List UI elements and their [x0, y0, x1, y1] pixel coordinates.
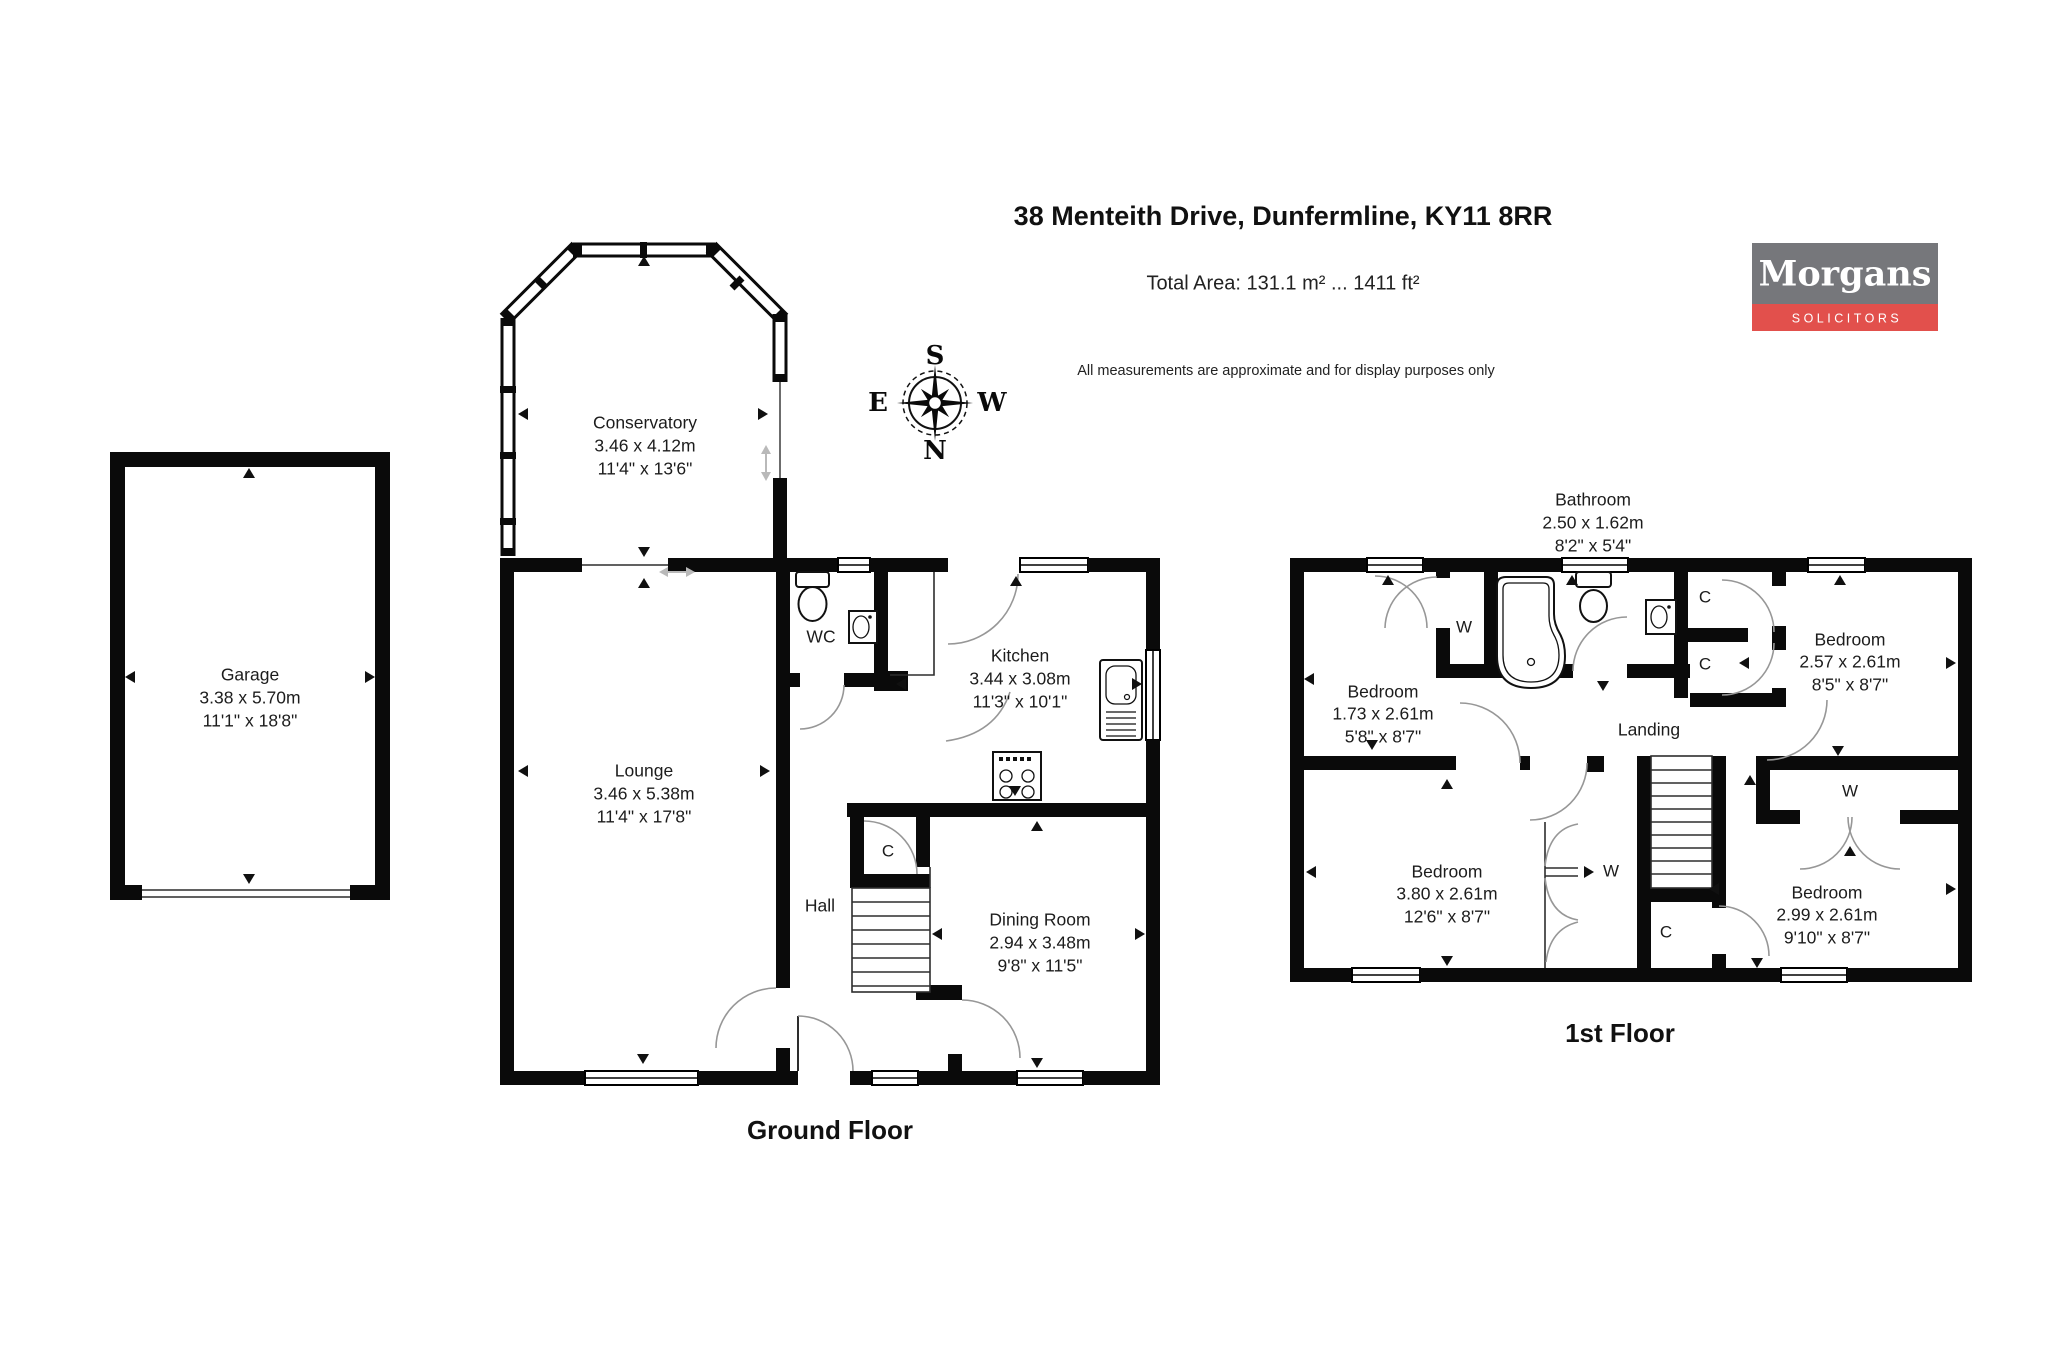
- svg-text:3.38 x 5.70m: 3.38 x 5.70m: [199, 688, 300, 708]
- svg-text:2.94 x 3.48m: 2.94 x 3.48m: [989, 933, 1090, 953]
- svg-text:3.80 x 2.61m: 3.80 x 2.61m: [1396, 884, 1497, 904]
- svg-text:2.57 x 2.61m: 2.57 x 2.61m: [1799, 652, 1900, 672]
- first-floor-plan: Bathroom 2.50 x 1.62m 8'2" x 5'4" Bedroo…: [1290, 490, 1972, 1048]
- disclaimer-text: All measurements are approximate and for…: [1077, 363, 1495, 379]
- ground-floor-label: Ground Floor: [747, 1115, 913, 1145]
- bath-icon: [1497, 577, 1565, 688]
- cupboard-marker-2: C: [1699, 654, 1711, 673]
- wardrobe-marker-2: W: [1603, 861, 1619, 880]
- morgans-logo: Morgans SOLICITORS: [1752, 243, 1938, 331]
- wc-toilet-icon: [796, 572, 829, 621]
- svg-text:Garage: Garage: [221, 665, 279, 685]
- svg-text:Lounge: Lounge: [615, 761, 673, 781]
- svg-text:3.44 x 3.08m: 3.44 x 3.08m: [969, 669, 1070, 689]
- dining-room-label: Dining Room 2.94 x 3.48m 9'8" x 11'5": [989, 910, 1090, 976]
- svg-text:Kitchen: Kitchen: [991, 646, 1049, 666]
- svg-text:Bedroom: Bedroom: [1411, 862, 1482, 882]
- svg-text:9'10" x 8'7": 9'10" x 8'7": [1784, 928, 1870, 948]
- kitchen-sink-icon: [1100, 660, 1142, 740]
- conservatory-bay-windows: [500, 242, 787, 560]
- bedroom-2-label: Bedroom 2.57 x 2.61m 8'5" x 8'7": [1799, 630, 1900, 695]
- svg-text:8'2" x 5'4": 8'2" x 5'4": [1555, 536, 1632, 556]
- ground-door-arcs: [716, 574, 1020, 1071]
- ground-stairs-icon: [852, 888, 930, 992]
- compass-top-letter: S: [926, 341, 945, 371]
- svg-text:11'4" x 17'8": 11'4" x 17'8": [597, 807, 692, 827]
- wc-label: WC: [806, 627, 835, 647]
- wardrobe-marker-1: W: [1456, 617, 1472, 636]
- first-stairs-icon: [1651, 756, 1712, 888]
- svg-text:Bedroom: Bedroom: [1814, 630, 1885, 650]
- svg-text:3.46 x 5.38m: 3.46 x 5.38m: [593, 784, 694, 804]
- svg-text:Bedroom: Bedroom: [1791, 883, 1862, 903]
- garage-plan: Garage 3.38 x 5.70m 11'1" x 18'8": [110, 452, 390, 900]
- floorplan-page: 38 Menteith Drive, Dunfermline, KY11 8RR…: [0, 0, 2048, 1365]
- bathroom-label: Bathroom 2.50 x 1.62m 8'2" x 5'4": [1542, 490, 1643, 556]
- svg-text:2.99 x 2.61m: 2.99 x 2.61m: [1776, 905, 1877, 925]
- svg-text:2.50 x 1.62m: 2.50 x 1.62m: [1542, 513, 1643, 533]
- garage-label: Garage 3.38 x 5.70m 11'1" x 18'8": [199, 665, 300, 731]
- page-title: 38 Menteith Drive, Dunfermline, KY11 8RR: [1014, 201, 1553, 231]
- ground-cupboard-marker: C: [882, 841, 894, 860]
- cupboard-marker-1: C: [1699, 587, 1711, 606]
- bedroom-4-label: Bedroom 2.99 x 2.61m 9'10" x 8'7": [1776, 883, 1877, 948]
- bedroom-3-label: Bedroom 3.80 x 2.61m 12'6" x 8'7": [1396, 862, 1497, 927]
- bedroom-1-label: Bedroom 1.73 x 2.61m 5'8" x 8'7": [1332, 682, 1433, 747]
- bathroom-basin-icon: [1646, 600, 1676, 634]
- svg-text:Conservatory: Conservatory: [593, 413, 697, 433]
- cupboard-marker-3: C: [1660, 922, 1672, 941]
- kitchen-counter: [890, 572, 934, 675]
- compass-left-letter: E: [868, 388, 888, 418]
- ground-floor-plan: Conservatory 3.46 x 4.12m 11'4" x 13'6": [500, 242, 1160, 1145]
- logo-tagline: SOLICITORS: [1792, 311, 1902, 325]
- svg-text:11'4" x 13'6": 11'4" x 13'6": [598, 459, 693, 479]
- svg-text:8'5" x 8'7": 8'5" x 8'7": [1812, 675, 1889, 695]
- svg-text:1.73 x 2.61m: 1.73 x 2.61m: [1332, 704, 1433, 724]
- svg-text:11'3" x 10'1": 11'3" x 10'1": [973, 692, 1068, 712]
- svg-text:Bedroom: Bedroom: [1347, 682, 1418, 702]
- hob-icon: [993, 752, 1041, 800]
- svg-text:Dining Room: Dining Room: [989, 910, 1090, 930]
- first-floor-label: 1st Floor: [1565, 1018, 1675, 1048]
- compass-right-letter: W: [976, 388, 1007, 418]
- compass-bottom-letter: N: [923, 436, 947, 466]
- total-area-text: Total Area: 131.1 m² ... 1411 ft²: [1146, 272, 1419, 294]
- wc-basin-icon: [849, 611, 877, 643]
- kitchen-label: Kitchen 3.44 x 3.08m 11'3" x 10'1": [969, 646, 1070, 712]
- landing-label: Landing: [1618, 720, 1680, 740]
- conservatory-label: Conservatory 3.46 x 4.12m 11'4" x 13'6": [593, 413, 697, 479]
- bathroom-toilet-icon: [1576, 572, 1611, 622]
- lounge-label: Lounge 3.46 x 5.38m 11'4" x 17'8": [593, 761, 694, 827]
- compass-rose-icon: S N E W: [868, 341, 1007, 466]
- svg-text:5'8" x 8'7": 5'8" x 8'7": [1345, 727, 1422, 747]
- wardrobe-marker-3: W: [1842, 781, 1858, 800]
- svg-text:3.46 x 4.12m: 3.46 x 4.12m: [594, 436, 695, 456]
- svg-text:11'1" x 18'8": 11'1" x 18'8": [203, 711, 298, 731]
- floorplan-canvas: 38 Menteith Drive, Dunfermline, KY11 8RR…: [0, 0, 2048, 1365]
- svg-text:9'8" x 11'5": 9'8" x 11'5": [998, 956, 1083, 976]
- logo-name: Morgans: [1759, 254, 1932, 295]
- hall-label: Hall: [805, 896, 835, 916]
- svg-text:Bathroom: Bathroom: [1555, 490, 1631, 510]
- svg-text:12'6" x 8'7": 12'6" x 8'7": [1404, 907, 1490, 927]
